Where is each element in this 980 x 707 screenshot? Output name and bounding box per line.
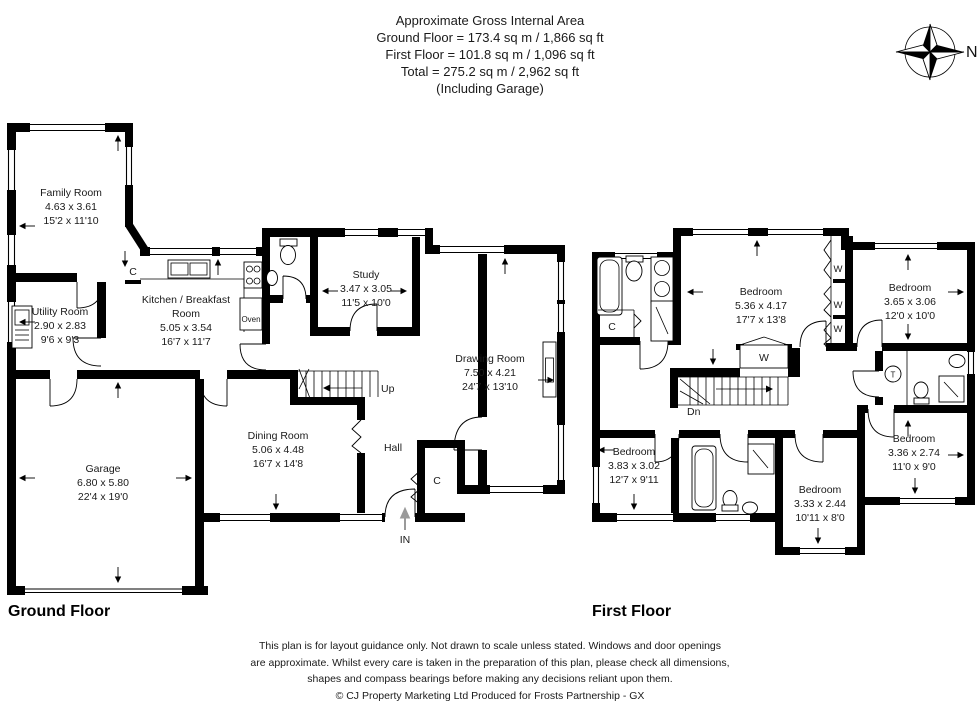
bedroom4-label: Bedroom 3.33 x 2.44 10'11 x 8'0 [794, 484, 846, 524]
bedroom1-name: Bedroom [740, 286, 783, 298]
kitchen-name-line2: Room [172, 308, 200, 320]
family-room-label: Family Room 4.63 x 3.61 15'2 x 11'10 [40, 187, 102, 227]
garage-label: Garage 6.80 x 5.80 22'4 x 19'0 [77, 463, 129, 503]
entrance-arrow-icon [401, 508, 410, 530]
down-label: Dn [687, 406, 701, 418]
dining-room-label: Dining Room 5.06 x 4.48 16'7 x 14'8 [248, 430, 309, 470]
utility-room-label: Utility Room 2.90 x 2.83 9'6 x 9'3 [32, 306, 89, 346]
floorplan-drawing: N [0, 0, 980, 707]
disclaimer: This plan is for layout guidance only. N… [0, 638, 980, 704]
toilet-icon-ensuite [626, 256, 643, 281]
bedroom5-imperial: 11'0 x 9'0 [892, 461, 936, 473]
bedroom1-metric: 5.36 x 4.17 [735, 300, 787, 312]
utility-room-name: Utility Room [32, 306, 89, 318]
north-label: N [966, 44, 978, 61]
bath-icon-ensuite [597, 257, 622, 315]
wardrobe1-label: W [834, 264, 843, 275]
wardrobe2-label: W [834, 300, 843, 311]
study-imperial: 11'5 x 10'0 [341, 297, 391, 309]
compass: N [896, 24, 978, 80]
bedroom1-label: Bedroom 5.36 x 4.17 17'7 x 13'8 [735, 286, 787, 326]
bedroom2-label: Bedroom 3.65 x 3.06 12'0 x 10'0 [884, 282, 936, 322]
bedroom5-label: Bedroom 3.36 x 2.74 11'0 x 9'0 [888, 433, 940, 473]
wardrobe-box-label: W [759, 352, 769, 364]
entrance-label: IN [400, 534, 411, 546]
family-room-name: Family Room [40, 187, 102, 199]
dining-room-imperial: 16'7 x 14'8 [253, 458, 303, 470]
fireplace-icon [543, 342, 556, 397]
first-cupboard-label: C [608, 321, 616, 333]
drawing-room-label: Drawing Room 7.50 x 4.21 24'7 x 13'10 [455, 353, 525, 393]
toilet-icon-bathroom3 [722, 491, 738, 512]
bedroom1-imperial: 17'7 x 13'8 [736, 314, 786, 326]
ground-room-labels: Family Room 4.63 x 3.61 15'2 x 11'10 Uti… [32, 187, 525, 546]
family-room-metric: 4.63 x 3.61 [45, 201, 97, 213]
shower-icon-ensuite [651, 301, 673, 341]
wardrobe3-label: W [834, 324, 843, 335]
bedroom4-metric: 3.33 x 2.44 [794, 498, 846, 510]
drawing-room-imperial: 24'7 x 13'10 [462, 381, 518, 393]
hob-icon [244, 262, 262, 288]
bedroom3-imperial: 12'7 x 9'11 [609, 474, 659, 486]
disclaimer-line1: This plan is for layout guidance only. N… [0, 638, 980, 655]
first-floor-plan: Dn [592, 228, 975, 555]
bedroom2-metric: 3.65 x 3.06 [884, 296, 936, 308]
wardrobe-box: W [740, 337, 788, 368]
kitchen-label: Kitchen / Breakfast Room 5.05 x 3.54 16'… [142, 294, 230, 348]
garage-name: Garage [85, 463, 120, 475]
basin-icon-bathroom3 [743, 502, 758, 514]
drawing-room-name: Drawing Room [455, 353, 525, 365]
copyright-line: © CJ Property Marketing Ltd Produced for… [0, 688, 980, 705]
ground-staircase: Up [298, 369, 395, 401]
twin-basins-icon [651, 257, 673, 303]
kitchen-metric: 5.05 x 3.54 [160, 322, 212, 334]
bedroom5-metric: 3.36 x 2.74 [888, 447, 940, 459]
drawing-room-metric: 7.50 x 4.21 [464, 367, 516, 379]
hall-cupboard-label: C [433, 475, 441, 487]
toilet-icon-bathroom2 [914, 382, 929, 404]
utility-room-imperial: 9'6 x 9'3 [41, 334, 80, 346]
bedroom3-label: Bedroom 3.83 x 3.02 12'7 x 9'11 [608, 446, 660, 486]
bedroom4-imperial: 10'11 x 8'0 [795, 512, 845, 524]
up-label: Up [381, 383, 395, 395]
bedroom5-name: Bedroom [893, 433, 936, 445]
compass-rose-icon [896, 24, 964, 80]
bath-icon-bathroom3 [692, 446, 716, 510]
tank-cupboard: T [885, 351, 907, 405]
bedroom3-metric: 3.83 x 3.02 [608, 460, 660, 472]
shower-icon-bathroom3 [748, 444, 774, 474]
tank-label: T [891, 371, 896, 380]
utility-room-metric: 2.90 x 2.83 [34, 320, 86, 332]
bedroom4-name: Bedroom [799, 484, 842, 496]
bedroom3-name: Bedroom [613, 446, 656, 458]
garage-imperial: 22'4 x 19'0 [78, 491, 128, 503]
wc-basin-icon [267, 271, 278, 286]
shower-icon-bathroom2 [939, 376, 964, 402]
ground-floor-plan: Up Oven [7, 123, 565, 595]
wc-toilet-icon [280, 239, 297, 265]
first-staircase: Dn [678, 377, 788, 418]
disclaimer-line2: are approximate. Whilst every care is ta… [0, 655, 980, 672]
kitchen-name-line1: Kitchen / Breakfast [142, 294, 230, 306]
bedroom2-name: Bedroom [889, 282, 932, 294]
study-metric: 3.47 x 3.05 [340, 283, 392, 295]
basin-icon-bathroom2 [949, 355, 965, 368]
study-label: Study 3.47 x 3.05 11'5 x 10'0 [340, 269, 392, 309]
ground-floor-title: Ground Floor [8, 603, 110, 621]
disclaimer-line3: shapes and compass bearings before makin… [0, 671, 980, 688]
utility-appliance-icon [12, 306, 32, 348]
kitchen-imperial: 16'7 x 11'7 [161, 336, 211, 348]
floorplan-page: Approximate Gross Internal Area Ground F… [0, 0, 980, 707]
family-room-imperial: 15'2 x 11'10 [43, 215, 98, 227]
dining-room-metric: 5.06 x 4.48 [252, 444, 304, 456]
kitchen-cupboard-label: C [129, 266, 137, 278]
dining-room-name: Dining Room [248, 430, 309, 442]
oven-icon: Oven [240, 298, 262, 330]
oven-label: Oven [241, 315, 260, 324]
garage-metric: 6.80 x 5.80 [77, 477, 129, 489]
first-floor-title: First Floor [592, 603, 671, 621]
bedroom2-imperial: 12'0 x 10'0 [885, 310, 935, 322]
study-name: Study [353, 269, 381, 281]
hall-label: Hall [384, 442, 402, 454]
